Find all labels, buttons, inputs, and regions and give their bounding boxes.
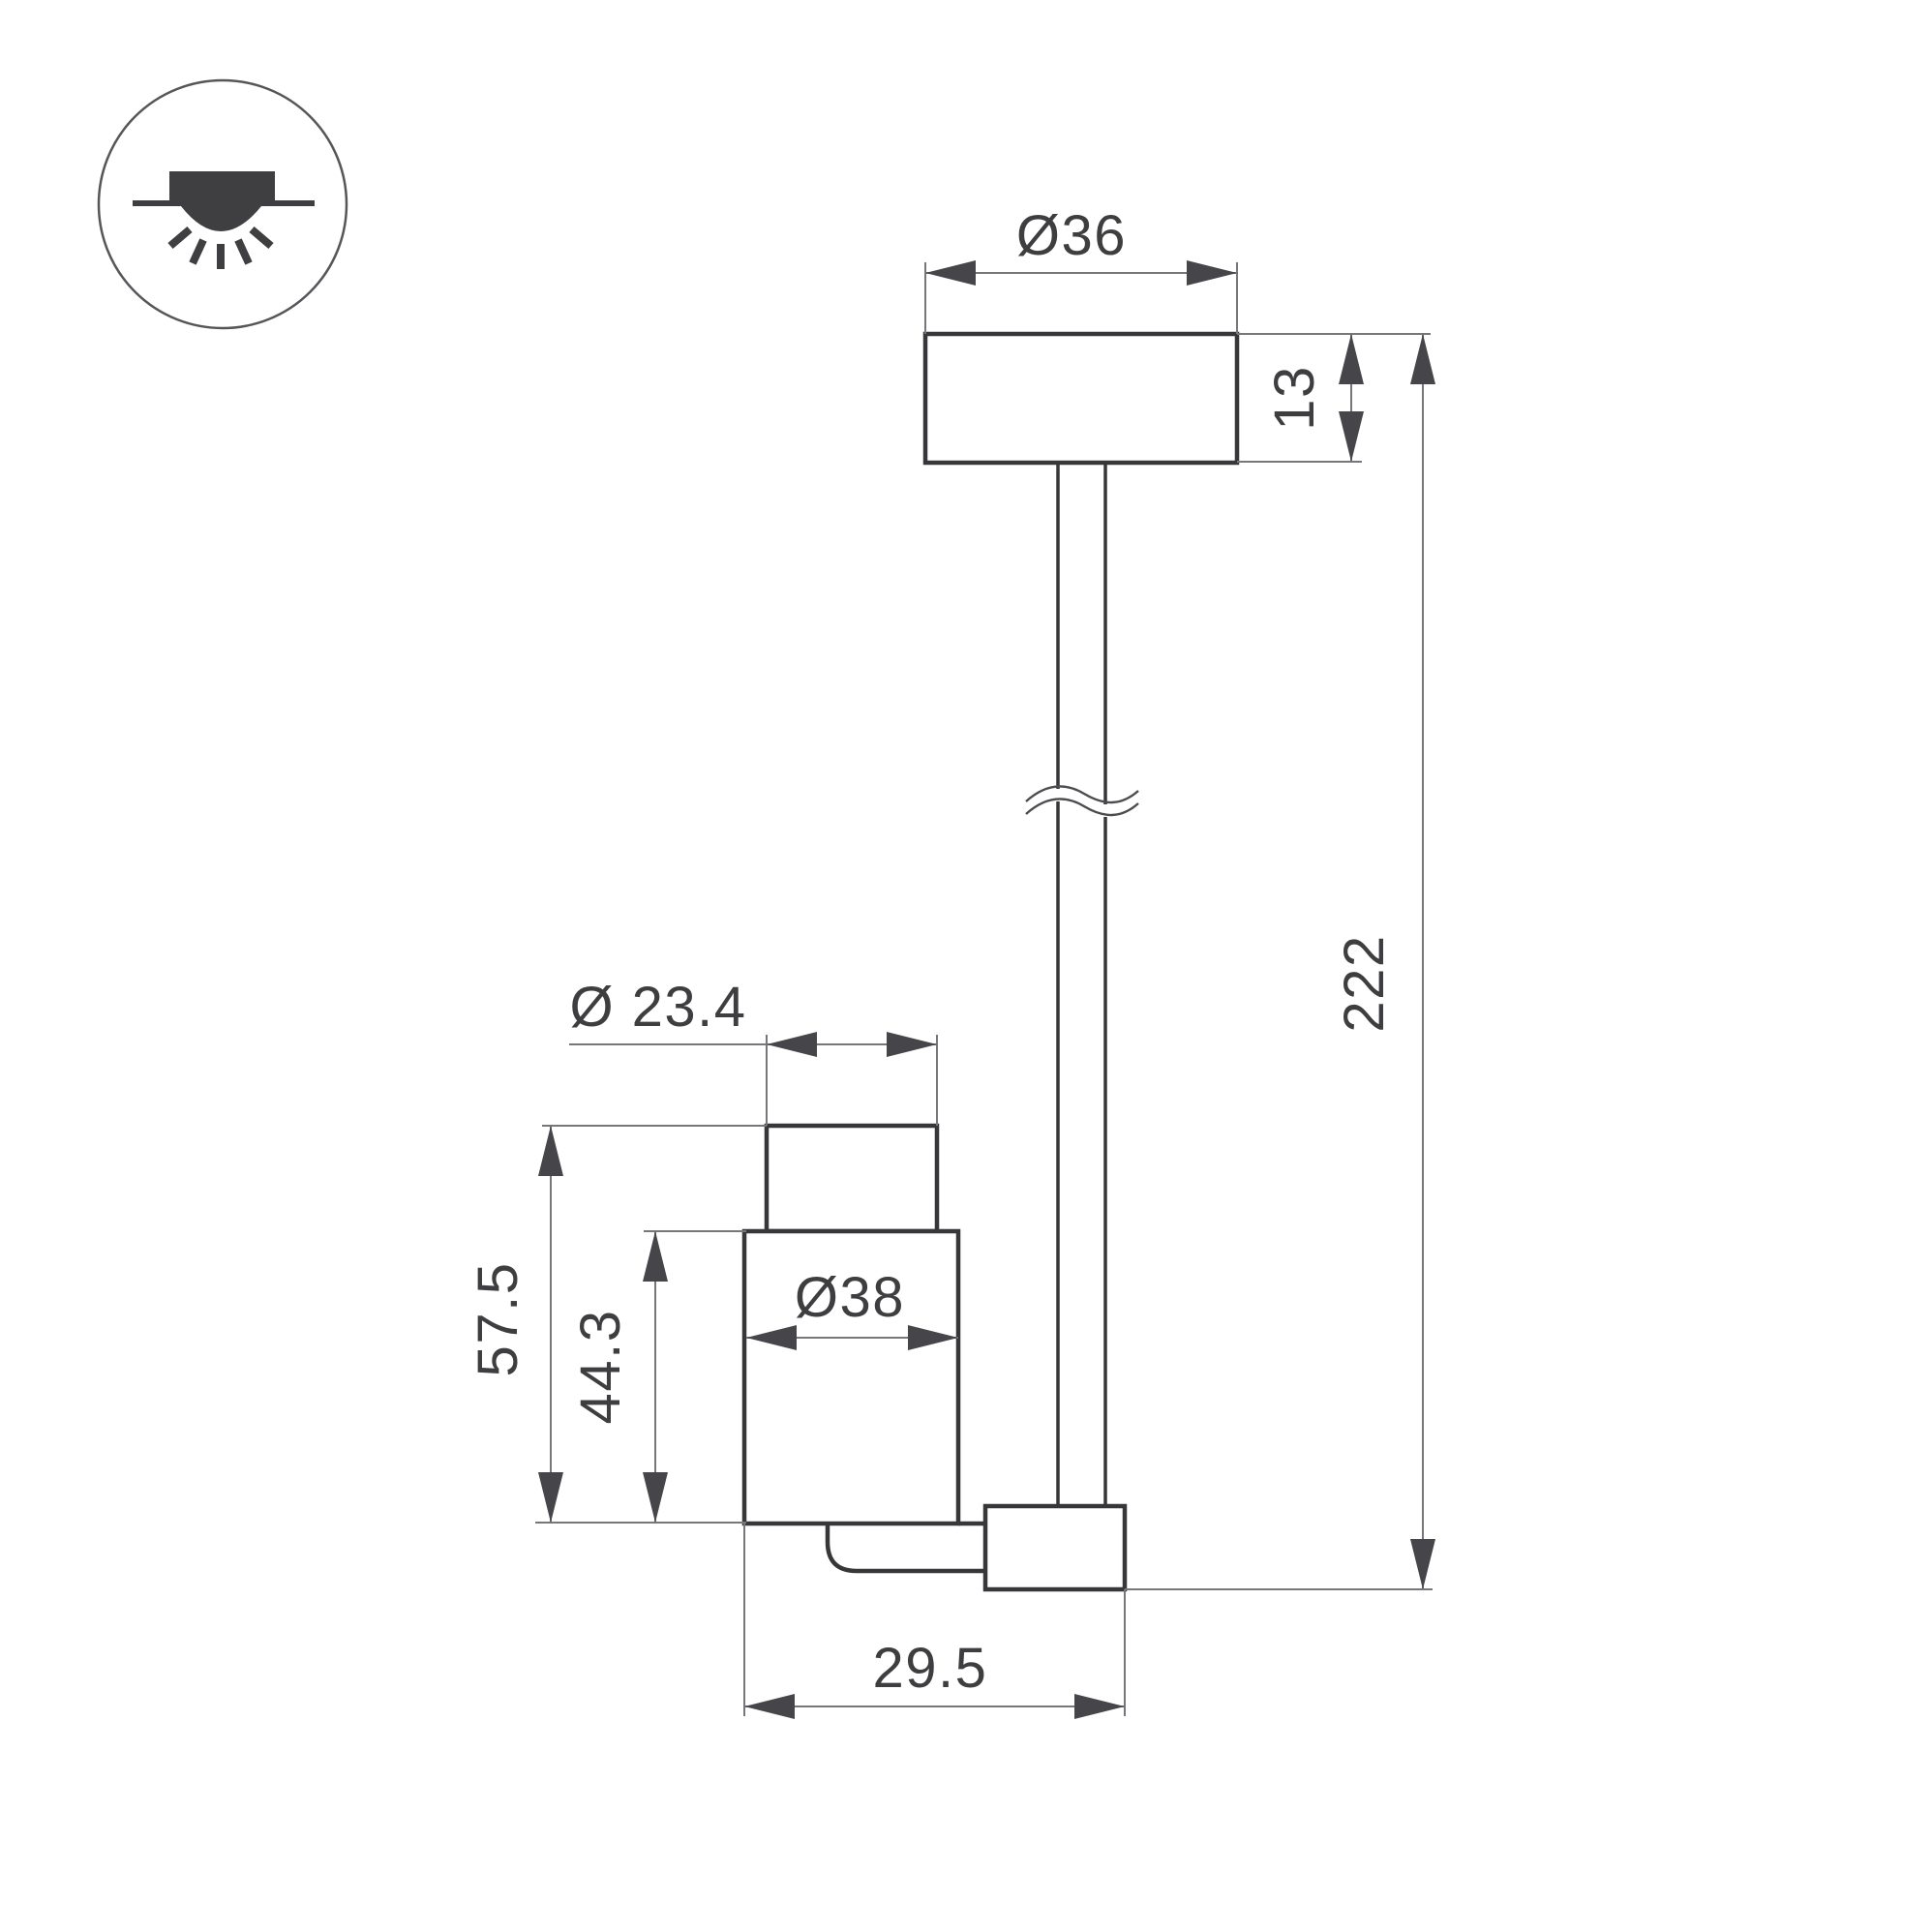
drawing-canvas: Ø36 13 222 Ø 23.4 57.5 <box>0 0 1932 1932</box>
dim-head-front-diameter: Ø 23.4 <box>569 976 937 1126</box>
head-front-cap <box>767 1126 937 1231</box>
arrow-right <box>887 1032 937 1057</box>
arrow-up <box>538 1126 563 1176</box>
dim-overall-length-label: 222 <box>1333 934 1396 1032</box>
dimension-drawing: Ø36 13 222 Ø 23.4 57.5 <box>0 0 1932 1932</box>
arrow-left <box>925 260 976 286</box>
dim-head-depth-label: 29.5 <box>873 1637 988 1700</box>
arrow-left <box>744 1694 795 1719</box>
arrow-down <box>1339 411 1364 462</box>
arrow-up <box>1410 334 1435 384</box>
arrow-left <box>767 1032 817 1057</box>
arrow-down <box>643 1472 668 1523</box>
icon-housing <box>169 171 275 201</box>
stem-break-wave-upper <box>1026 786 1138 802</box>
dim-head-front-diameter-label: Ø 23.4 <box>569 976 746 1039</box>
dim-canopy-diameter: Ø36 <box>925 204 1237 334</box>
dim-lines <box>569 1035 937 1126</box>
arrow-right <box>1074 1694 1125 1719</box>
mount-type-badge <box>99 80 347 328</box>
arrow-right <box>1187 260 1237 286</box>
arrow-up <box>643 1231 668 1282</box>
dim-overall-length: 222 <box>1125 334 1435 1589</box>
canopy <box>925 334 1237 463</box>
dim-head-total-height-label: 57.5 <box>467 1262 529 1377</box>
elbow-housing <box>985 1506 1125 1589</box>
dim-canopy-height-label: 13 <box>1263 365 1326 431</box>
dim-head-body-height: 44.3 <box>569 1231 746 1523</box>
conduit-elbow <box>828 1524 985 1571</box>
arrow-down <box>1410 1539 1435 1589</box>
arrow-up <box>1339 334 1364 384</box>
dim-head-body-height-label: 44.3 <box>569 1310 632 1425</box>
dim-canopy-diameter-label: Ø36 <box>1016 204 1127 267</box>
dim-head-body-diameter-label: Ø38 <box>795 1266 905 1329</box>
dim-canopy-height: 13 <box>1237 334 1431 462</box>
icon-ceiling-line <box>133 200 315 206</box>
luminaire-outline <box>744 334 1237 1589</box>
arrow-down <box>538 1472 563 1523</box>
